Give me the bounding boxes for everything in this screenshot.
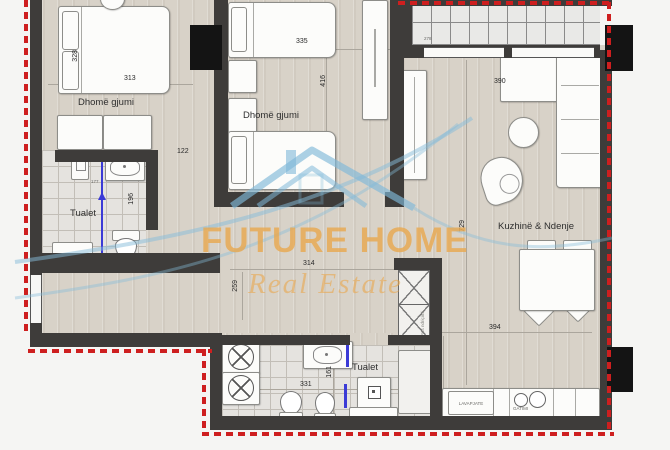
bedroom2-right-wall bbox=[390, 0, 404, 192]
plumbing-pipe bbox=[101, 153, 103, 253]
boundary-line-bottom-left bbox=[28, 349, 212, 353]
dim-hall-length: 314 bbox=[303, 260, 315, 267]
dim-bathroom1-depth: 196 bbox=[128, 193, 135, 205]
boundary-line-step bbox=[202, 349, 206, 432]
outer-wall-left bbox=[30, 0, 42, 275]
dim-bathroom1-width: 177 bbox=[91, 179, 99, 184]
dim-line bbox=[442, 332, 592, 333]
dim-balcony-width: 278 bbox=[424, 36, 432, 41]
floor-plan: Pus ndriçimi LAVAPJATE GATIMI Dhomë gjum… bbox=[0, 0, 670, 450]
dim-bedroom2-width: 335 bbox=[296, 38, 308, 45]
column-bedrooms bbox=[190, 25, 222, 70]
dim-bedroom1-depth: 328 bbox=[72, 50, 79, 62]
sofa-cushion-line bbox=[561, 153, 599, 154]
dim-bathroom2-width: 331 bbox=[300, 381, 312, 388]
dim-living-sofa: 390 bbox=[494, 78, 506, 85]
dim-line bbox=[242, 272, 243, 320]
dim-hall-depth: 259 bbox=[232, 280, 239, 292]
pillow bbox=[231, 7, 247, 52]
living-window-1 bbox=[424, 47, 504, 58]
stove-label: GATIMI bbox=[513, 406, 528, 411]
living-window-2 bbox=[512, 47, 594, 58]
washer-drum bbox=[228, 375, 254, 401]
sink-drain bbox=[325, 353, 328, 356]
plumbing-pipe bbox=[344, 384, 347, 408]
room-label-bedroom2: Dhomë gjumi bbox=[243, 110, 299, 121]
boundary-line-right bbox=[607, 2, 611, 432]
bedroom2-bottom-wall-corner bbox=[385, 192, 404, 207]
dim-bathroom2-depth: 161 bbox=[326, 366, 333, 378]
bathroom1-top-wall bbox=[55, 150, 158, 162]
corridor-bottom-wall bbox=[30, 333, 222, 347]
bathroom2-top-wall bbox=[210, 335, 350, 345]
stove-burner-icon bbox=[514, 393, 528, 407]
sink-drain bbox=[123, 165, 126, 168]
sofa-cushion-line bbox=[561, 119, 599, 120]
shower-drain bbox=[372, 390, 375, 393]
boundary-line-top bbox=[398, 1, 611, 5]
nightstand bbox=[228, 60, 257, 93]
washer-drum bbox=[228, 344, 254, 370]
tv-unit-line bbox=[414, 77, 415, 173]
room-label-bathroom1: Tualet bbox=[70, 208, 96, 219]
washing-machine-icon bbox=[222, 372, 260, 405]
plumbing-arrow-icon bbox=[98, 192, 106, 200]
watermark-tagline: Real Estate bbox=[248, 268, 403, 301]
bed-line bbox=[253, 132, 254, 189]
kitchen-cabinet: LAVAPJATE bbox=[448, 391, 494, 415]
bedroom2-bottom-wall bbox=[218, 192, 344, 207]
window-left bbox=[30, 275, 42, 323]
outer-wall-bottom bbox=[210, 416, 612, 430]
sofa bbox=[556, 50, 604, 188]
boundary-line-bottom bbox=[202, 432, 614, 436]
bathroom1-bottom-wall bbox=[30, 253, 220, 273]
pillow bbox=[231, 136, 247, 184]
dim-bedroom1-width: 313 bbox=[124, 75, 136, 82]
dim-bedroom2-depth: 416 bbox=[320, 75, 327, 87]
wardrobe-bedroom2 bbox=[362, 0, 388, 120]
bed-line bbox=[81, 7, 82, 93]
shaft-right-wall bbox=[430, 258, 442, 416]
shower-icon bbox=[357, 377, 391, 410]
wardrobe-handle bbox=[374, 29, 376, 87]
dim-living-width: 394 bbox=[489, 324, 501, 331]
armchair-seat bbox=[497, 171, 522, 196]
urinal-detail bbox=[76, 161, 86, 171]
room-label-bedroom1: Dhomë gjumi bbox=[78, 97, 134, 108]
stove-burner-icon bbox=[529, 391, 546, 408]
bathroom2-top-wall-b bbox=[388, 335, 430, 345]
boundary-line-left bbox=[24, 0, 28, 333]
counter-divider bbox=[575, 389, 576, 417]
wardrobe-bedroom1-a bbox=[57, 115, 103, 150]
kitchen-cabinet-label: LAVAPJATE bbox=[459, 401, 484, 406]
counter-divider bbox=[553, 389, 554, 417]
tv-unit bbox=[402, 70, 427, 180]
shaft-closet bbox=[398, 350, 432, 414]
bathroom1-right-wall bbox=[146, 150, 158, 230]
watermark-brand: FUTURE HOME bbox=[201, 221, 469, 261]
dining-table bbox=[519, 249, 595, 311]
bed-line bbox=[253, 3, 254, 57]
coffee-table bbox=[508, 117, 539, 148]
room-label-living: Kuzhinë & Ndenje bbox=[498, 221, 574, 232]
pillow bbox=[62, 11, 79, 50]
washing-machine-icon bbox=[222, 341, 260, 374]
counter-divider bbox=[509, 389, 510, 417]
plumbing-pipe bbox=[346, 345, 349, 367]
room-label-bathroom2: Tualet bbox=[352, 362, 378, 373]
balcony-terrace bbox=[412, 0, 600, 45]
dim-hall-upper: 122 bbox=[177, 148, 189, 155]
sofa-cushion-line bbox=[561, 85, 599, 86]
wardrobe-bedroom1-b bbox=[103, 115, 152, 150]
shaft-label: Pus ndriçimi bbox=[420, 276, 425, 336]
